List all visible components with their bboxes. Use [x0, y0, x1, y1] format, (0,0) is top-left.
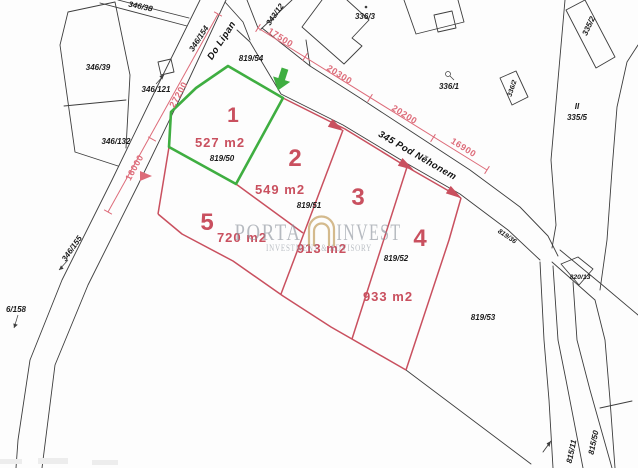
parcel-label-819-50: 819/50 — [210, 154, 235, 163]
boundary-arrowhead — [446, 186, 464, 202]
well-symbol-tail — [450, 76, 454, 80]
plot-4-number: 4 — [413, 225, 427, 252]
dimension-label-27200: 27200 — [167, 80, 189, 109]
cadastral-map-screenshot: 346/38 346/39 346/121 346/132 346/154 34… — [0, 0, 638, 468]
access-tick-line — [600, 401, 632, 408]
parcel-label-346-121: 346/121 — [142, 85, 171, 94]
watermark: PORTA INVEST INVESTMENT & ADVISORY — [235, 217, 402, 254]
parcel-label-335-5: 335/5 — [567, 113, 588, 122]
parcel-label-819-54: 819/54 — [239, 54, 264, 63]
scan-artifact — [38, 458, 68, 464]
green-marker-arrow-icon — [269, 66, 293, 93]
parcel-335-5-west-edge — [551, 0, 565, 248]
plot-4-area: 933 m2 — [363, 289, 413, 304]
parcel-336-boundary — [306, 40, 310, 66]
building-336-3 — [302, 0, 369, 64]
parcel-label-336-3: 336/3 — [355, 12, 376, 21]
parcel-mark-335-5: II — [575, 102, 580, 111]
parcel-label-336-1: 336/1 — [439, 82, 460, 91]
arrowhead-6-158 — [13, 323, 17, 328]
boundary-arrowhead — [398, 158, 416, 174]
plot-1-number: 1 — [227, 104, 239, 127]
road-label-do-lipan: Do Lipan — [205, 19, 238, 62]
parcel-label-346-132: 346/132 — [102, 137, 131, 146]
plot-3-number: 3 — [351, 184, 364, 211]
dimension-label-17500: 17500 — [266, 26, 295, 49]
scan-artifact — [92, 460, 118, 465]
parcel-label-820-13: 820/13 — [570, 274, 591, 281]
parcel-label-346-39: 346/39 — [86, 63, 111, 72]
parcel-label-335-2: 335/2 — [580, 14, 597, 36]
cadastral-map: 346/38 346/39 346/121 346/132 346/154 34… — [0, 0, 638, 468]
plot-1-area: 527 m2 — [195, 135, 245, 150]
watermark-subtitle: INVESTMENT & ADVISORY — [266, 243, 372, 253]
parcel-label-819-36: 819/36 — [496, 228, 517, 246]
building-346-121 — [158, 59, 174, 75]
watermark-brand-right: INVEST — [337, 220, 402, 245]
scan-artifact — [0, 459, 22, 464]
parcel-label-819-51: 819/51 — [297, 201, 322, 210]
parcel-number-labels: 346/38 346/39 346/121 346/132 346/154 34… — [6, 0, 601, 464]
dim-arrowhead — [140, 171, 152, 181]
parcel-label-815-50: 815/50 — [587, 429, 601, 455]
plot-5-west-edge — [158, 147, 169, 214]
parcel-label-819-53: 819/53 — [471, 313, 496, 322]
right-edge-lines — [600, 45, 638, 290]
plot-2-number: 2 — [288, 145, 301, 172]
building-336-3-annex — [404, 0, 464, 34]
road-branch-b-path — [540, 262, 612, 468]
parcel-label-346-155: 346/155 — [60, 234, 84, 263]
parcel-819-53-south-edge — [406, 370, 531, 464]
plots-road-boundary — [283, 98, 461, 198]
dimension-label-20300: 20300 — [325, 63, 354, 86]
parcel-label-815-11: 815/11 — [565, 438, 579, 464]
parcel-label-6-158: 6/158 — [6, 305, 27, 314]
parcel-label-819-52: 819/52 — [384, 254, 409, 263]
point-symbol-336-3 — [365, 6, 368, 9]
building-335-2 — [566, 0, 615, 68]
plot-2-area: 549 m2 — [255, 182, 305, 197]
well-symbol-336-1 — [446, 72, 451, 77]
plot-5-number: 5 — [200, 209, 213, 236]
dimension-label-20200: 20200 — [390, 103, 419, 126]
road-do-lipan-east-edge — [42, 0, 226, 468]
watermark-brand-left: PORTA — [235, 220, 302, 245]
parcel-label-343-12: 343/12 — [264, 2, 286, 28]
parcel-label-336-2: 336/2 — [507, 79, 519, 98]
plot-4-east-edge — [406, 198, 461, 370]
road-345-ne-edge — [262, 28, 558, 256]
